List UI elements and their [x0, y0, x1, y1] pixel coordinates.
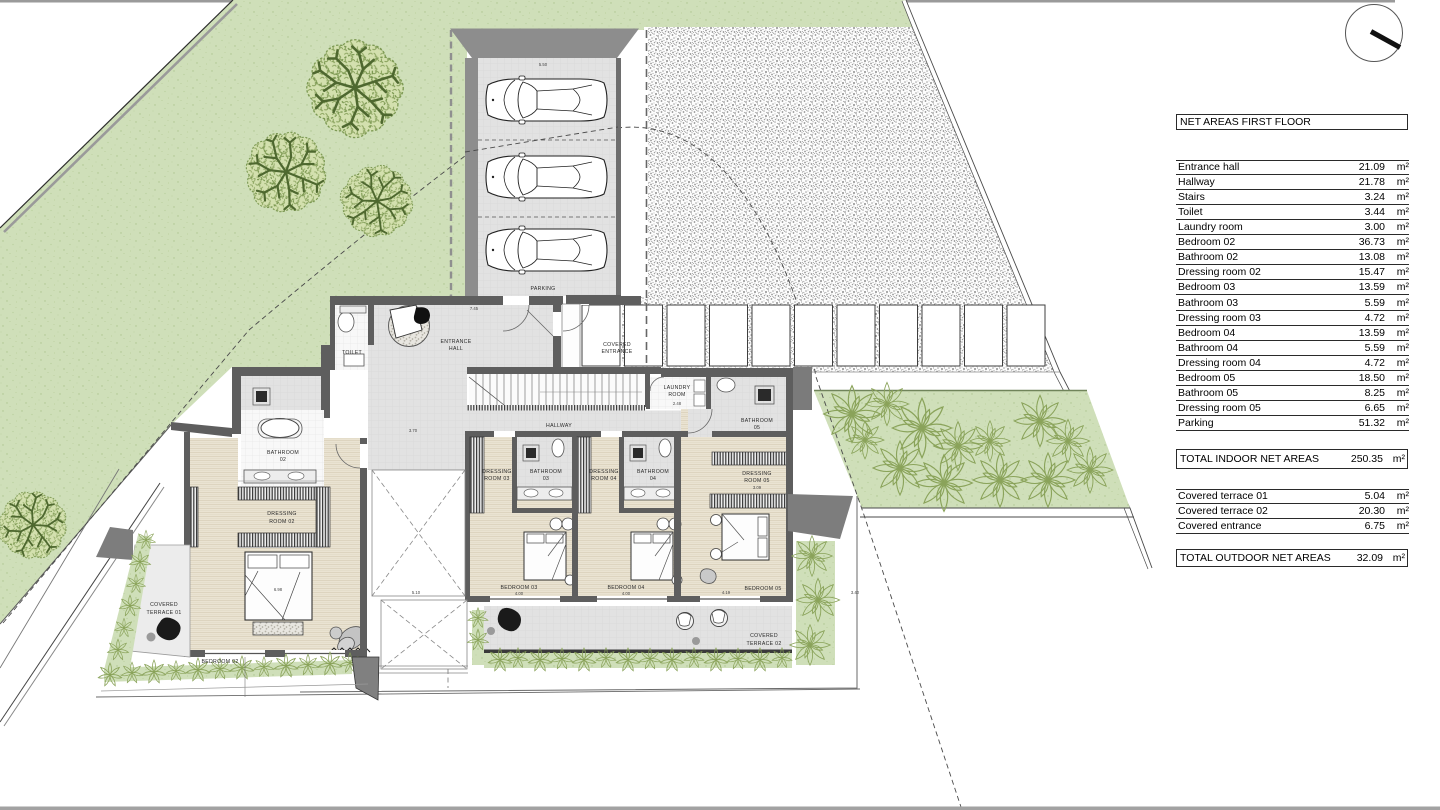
svg-text:TERRACE 02: TERRACE 02 — [747, 641, 782, 647]
svg-text:HALLWAY: HALLWAY — [546, 423, 572, 429]
svg-text:DRESSING: DRESSING — [742, 471, 772, 477]
svg-text:COVERED: COVERED — [603, 342, 631, 348]
svg-text:04: 04 — [650, 476, 656, 482]
svg-text:2.48: 2.48 — [673, 401, 682, 406]
svg-text:COVERED: COVERED — [750, 633, 778, 639]
svg-text:4.19: 4.19 — [722, 590, 731, 595]
svg-text:7.45: 7.45 — [470, 306, 479, 311]
svg-text:02: 02 — [280, 457, 286, 463]
svg-text:COVERED: COVERED — [150, 602, 178, 608]
svg-text:3.40: 3.40 — [851, 590, 860, 595]
svg-text:3.09: 3.09 — [753, 485, 762, 490]
svg-text:DRESSING: DRESSING — [267, 511, 297, 517]
svg-text:6.98: 6.98 — [274, 587, 283, 592]
svg-text:03: 03 — [543, 476, 549, 482]
svg-text:BATHROOM: BATHROOM — [741, 418, 773, 424]
svg-text:4.00: 4.00 — [622, 591, 631, 596]
svg-text:HALL: HALL — [449, 346, 463, 352]
svg-text:05: 05 — [754, 425, 760, 431]
svg-text:3.70: 3.70 — [409, 428, 418, 433]
svg-text:PARKING: PARKING — [530, 286, 555, 292]
svg-text:5.50: 5.50 — [539, 62, 548, 67]
svg-text:BATHROOM: BATHROOM — [267, 450, 299, 456]
svg-text:ROOM 03: ROOM 03 — [484, 476, 509, 482]
svg-text:BEDROOM 05: BEDROOM 05 — [744, 586, 781, 592]
svg-text:ENTRANCE: ENTRANCE — [602, 349, 633, 355]
svg-text:LAUNDRY: LAUNDRY — [664, 385, 691, 391]
svg-text:ENTRANCE: ENTRANCE — [441, 339, 472, 345]
svg-text:5.10: 5.10 — [412, 590, 421, 595]
svg-text:DRESSING: DRESSING — [482, 469, 512, 475]
svg-text:ROOM: ROOM — [668, 392, 685, 398]
svg-text:4.00: 4.00 — [515, 591, 524, 596]
svg-text:ROOM 05: ROOM 05 — [744, 478, 769, 484]
svg-text:BEDROOM 02: BEDROOM 02 — [201, 659, 238, 665]
svg-text:TERRACE 01: TERRACE 01 — [147, 610, 182, 616]
svg-text:TOILET: TOILET — [342, 350, 362, 356]
svg-text:ROOM 04: ROOM 04 — [591, 476, 616, 482]
svg-text:BATHROOM: BATHROOM — [530, 469, 562, 475]
svg-text:ROOM 02: ROOM 02 — [269, 519, 294, 525]
svg-text:BATHROOM: BATHROOM — [637, 469, 669, 475]
svg-text:DRESSING: DRESSING — [589, 469, 619, 475]
